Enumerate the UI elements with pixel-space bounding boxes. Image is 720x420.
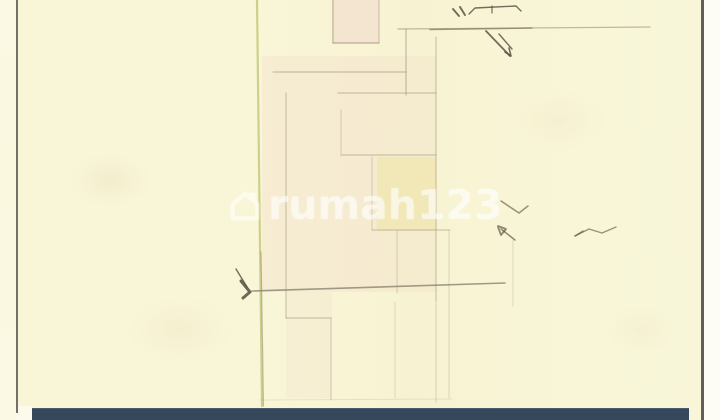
scanned-floorplan-photo: rumah123	[0, 0, 720, 420]
right-margin	[704, 0, 720, 420]
left-edge-line	[16, 0, 18, 413]
bottom-bar	[32, 408, 689, 420]
floorplan-sketch	[0, 0, 720, 420]
left-margin	[0, 0, 16, 420]
